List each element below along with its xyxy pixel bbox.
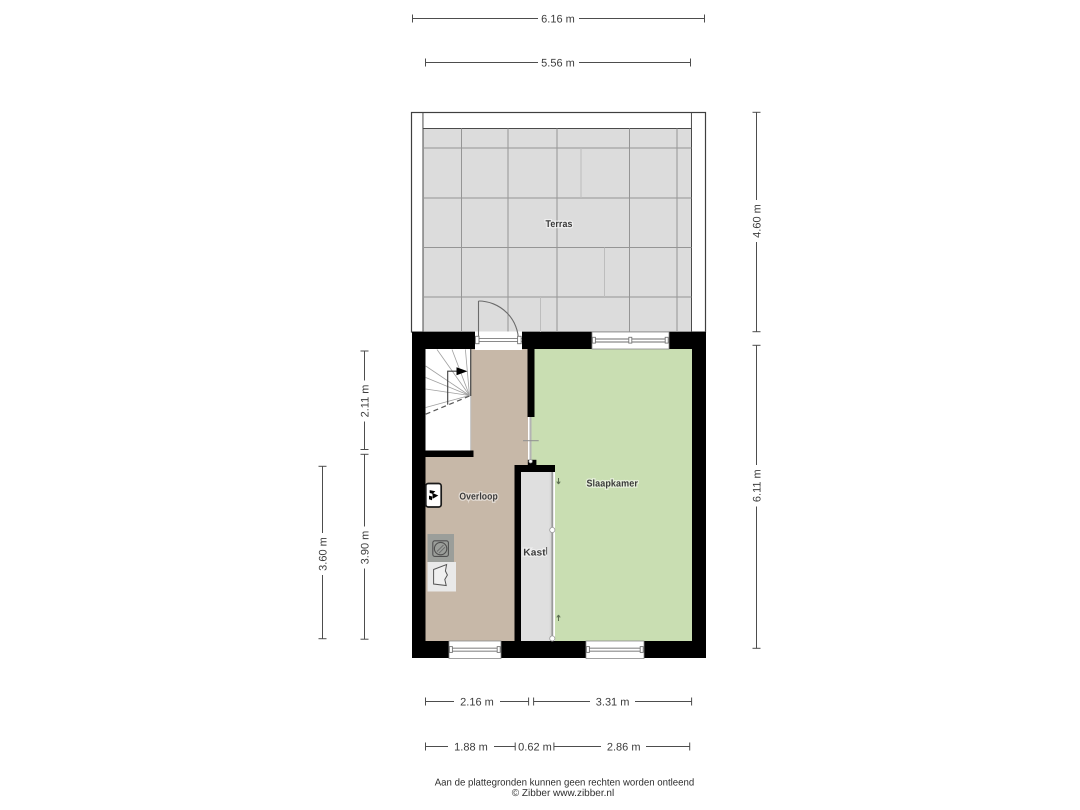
svg-text:2.86 m: 2.86 m [607,742,641,754]
svg-text:4.60 m: 4.60 m [752,204,764,238]
svg-text:1.88 m: 1.88 m [454,742,488,754]
svg-text:Kast: Kast [523,548,546,559]
svg-text:3.90 m: 3.90 m [360,531,372,565]
svg-text:Aan de plattegronden kunnen ge: Aan de plattegronden kunnen geen rechten… [435,778,695,789]
svg-text:Terras: Terras [546,219,573,230]
svg-text:0.62 m: 0.62 m [518,742,552,754]
svg-text:Overloop: Overloop [459,492,498,503]
svg-text:3.31 m: 3.31 m [596,697,630,709]
svg-text:3.60 m: 3.60 m [318,537,330,571]
svg-text:© Zibber www.zibber.nl: © Zibber www.zibber.nl [512,788,614,799]
svg-text:2.16 m: 2.16 m [460,697,494,709]
svg-text:5.56 m: 5.56 m [541,58,575,70]
svg-text:2.11 m: 2.11 m [360,385,372,418]
svg-text:Slaapkamer: Slaapkamer [586,479,638,490]
svg-text:6.11 m: 6.11 m [752,469,764,502]
svg-text:6.16 m: 6.16 m [541,14,575,26]
